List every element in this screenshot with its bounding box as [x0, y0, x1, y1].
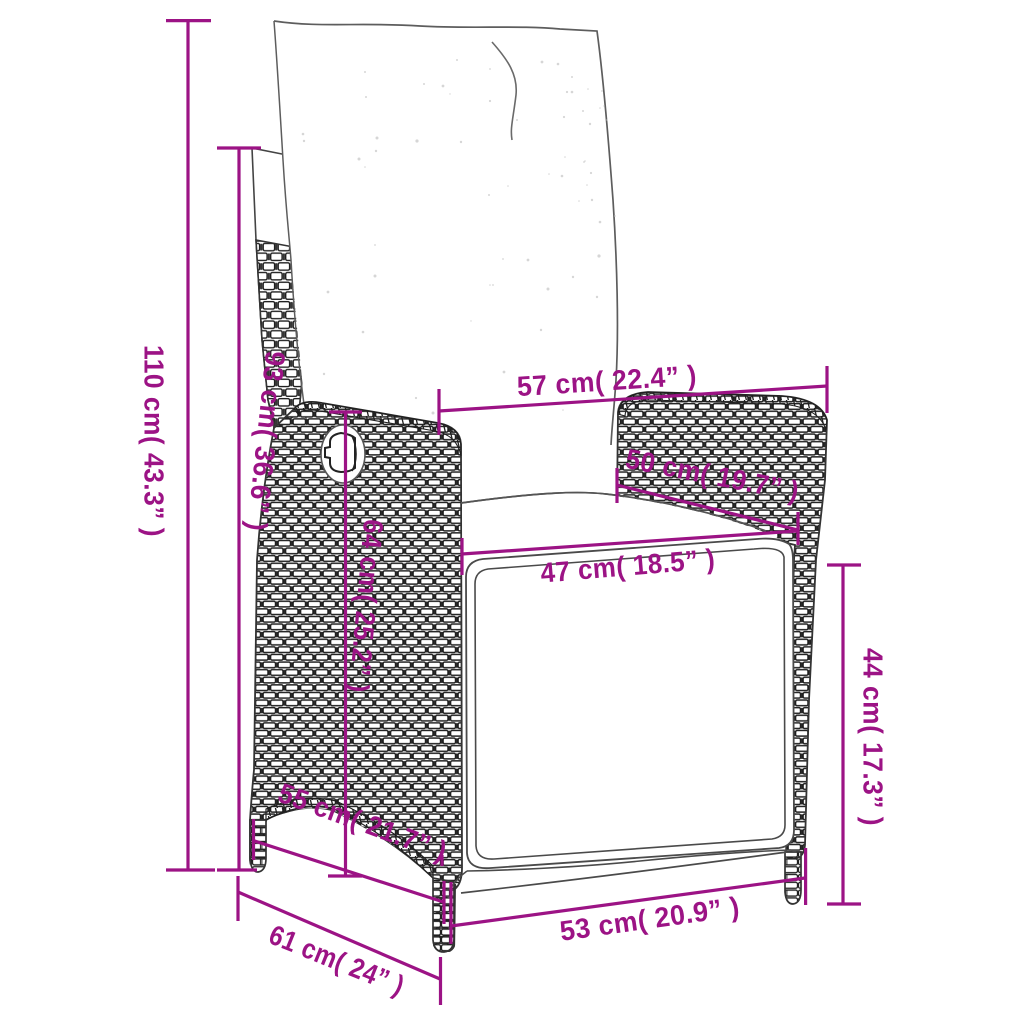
svg-text:44 cm( 17.3” ): 44 cm( 17.3” )	[858, 648, 889, 826]
svg-text:110 cm( 43.3” ): 110 cm( 43.3” )	[139, 345, 170, 537]
